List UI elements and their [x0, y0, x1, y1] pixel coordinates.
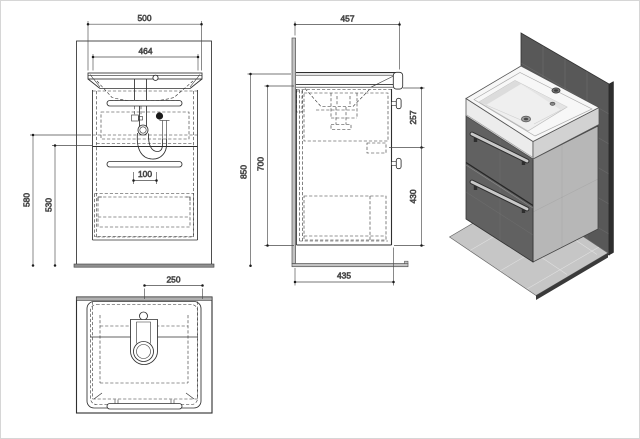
dim-label-250: 250 [167, 274, 181, 284]
angle-valve [156, 112, 163, 119]
dim-label-500: 500 [138, 13, 152, 23]
render-wall-panel-edge [609, 82, 614, 256]
dim-label-530: 530 [44, 198, 54, 212]
dim-label-580: 580 [22, 193, 32, 207]
dim-label-850: 850 [239, 165, 249, 179]
dim-label-464: 464 [139, 46, 153, 56]
drawer-handle-front-upper [107, 101, 182, 107]
wall-panel-edge [292, 38, 296, 264]
drawer-handle-front-lower [107, 162, 182, 168]
dim-label-257: 257 [408, 110, 418, 124]
dim-label-435: 435 [337, 271, 351, 281]
dim-label-100: 100 [138, 169, 152, 179]
render-overflow-hole [550, 102, 555, 105]
dim-label-457: 457 [341, 14, 355, 24]
dim-label-700: 700 [256, 157, 266, 171]
drawing-canvas: 500 464 580 530 100 [0, 0, 640, 439]
technical-drawing-sheet: 500 464 580 530 100 [0, 0, 640, 439]
floor-plate-edge [292, 264, 408, 267]
dim-label-430: 430 [408, 189, 418, 203]
floor-line [74, 264, 214, 267]
faucet-hole-plan [140, 312, 148, 320]
faucet-hole-front [153, 75, 158, 80]
drawer-handle-plan [107, 404, 182, 410]
